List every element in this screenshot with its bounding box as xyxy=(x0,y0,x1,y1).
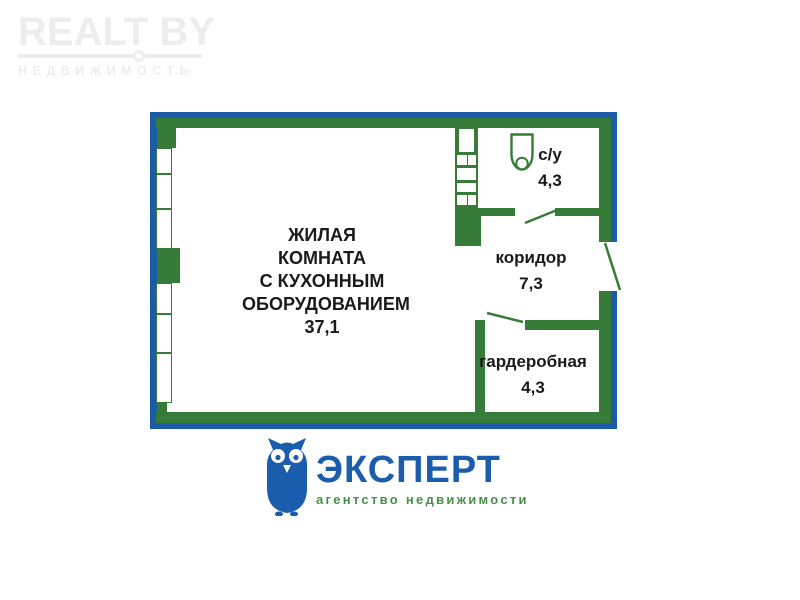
living-room-name-line: ЖИЛАЯ КОМНАТА xyxy=(242,224,402,270)
bathroom-area: 4,3 xyxy=(528,168,572,194)
living-room-name-line: С КУХОННЫМ xyxy=(242,270,402,293)
living-room-area: 37,1 xyxy=(242,316,402,339)
expert-logo: ЭКСПЕРТ агентство недвижимости xyxy=(263,436,529,516)
realt-dot xyxy=(133,50,145,62)
bathroom-label: с/у 4,3 xyxy=(528,142,572,194)
corridor-name: коридор xyxy=(471,245,591,271)
bathroom-name: с/у xyxy=(528,142,572,168)
living-room-name-line: ОБОРУДОВАНИЕМ xyxy=(242,293,402,316)
corridor-label: коридор 7,3 xyxy=(471,245,591,297)
expert-name-text: ЭКСПЕРТ xyxy=(316,452,529,488)
expert-logo-text: ЭКСПЕРТ агентство недвижимости xyxy=(316,452,529,507)
entrance-door-swing-line xyxy=(605,243,620,290)
wardrobe-door-swing-line xyxy=(487,313,523,322)
realt-by-logo: REALT BY НЕДВИЖИМОСТЬ xyxy=(18,10,202,78)
living-room-label: ЖИЛАЯ КОМНАТА С КУХОННЫМ ОБОРУДОВАНИЕМ 3… xyxy=(242,224,402,339)
realt-subtitle-text: НЕДВИЖИМОСТЬ xyxy=(18,64,202,78)
floorplan: ЖИЛАЯ КОМНАТА С КУХОННЫМ ОБОРУДОВАНИЕМ 3… xyxy=(150,112,617,429)
wardrobe-label: гардеробная 4,3 xyxy=(473,349,593,401)
corridor-area: 7,3 xyxy=(471,271,591,297)
realt-divider-line xyxy=(18,54,202,58)
bathroom-door-swing-line xyxy=(525,210,557,223)
wardrobe-name: гардеробная xyxy=(473,349,593,375)
wardrobe-area: 4,3 xyxy=(473,375,593,401)
expert-tagline-text: агентство недвижимости xyxy=(316,492,529,507)
realt-brand-text: REALT BY xyxy=(18,10,202,54)
owl-icon xyxy=(263,436,311,516)
page: REALT BY НЕДВИЖИМОСТЬ xyxy=(0,0,800,600)
